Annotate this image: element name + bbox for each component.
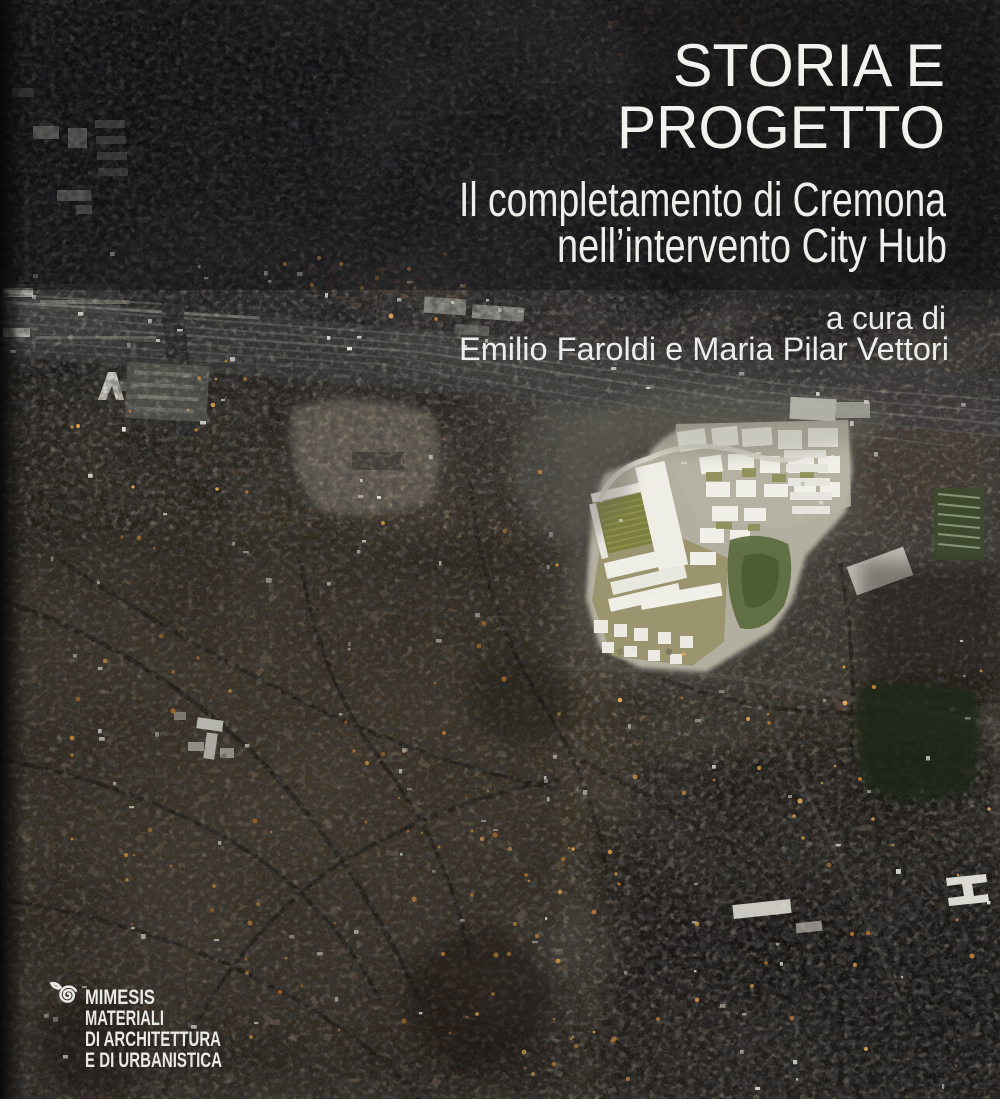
svg-text:STORIA E: STORIA E [673,32,945,99]
svg-text:MIMESIS: MIMESIS [85,986,155,1009]
svg-text:E DI URBANISTICA: E DI URBANISTICA [85,1049,222,1072]
svg-text:nell’intervento City Hub: nell’intervento City Hub [557,220,947,273]
svg-text:Emilio Faroldi e Maria Pilar V: Emilio Faroldi e Maria Pilar Vettori [459,331,949,367]
svg-text:DI ARCHITETTURA: DI ARCHITETTURA [85,1028,221,1051]
svg-text:MATERIALI: MATERIALI [85,1007,164,1030]
svg-text:PROGETTO: PROGETTO [617,94,945,161]
